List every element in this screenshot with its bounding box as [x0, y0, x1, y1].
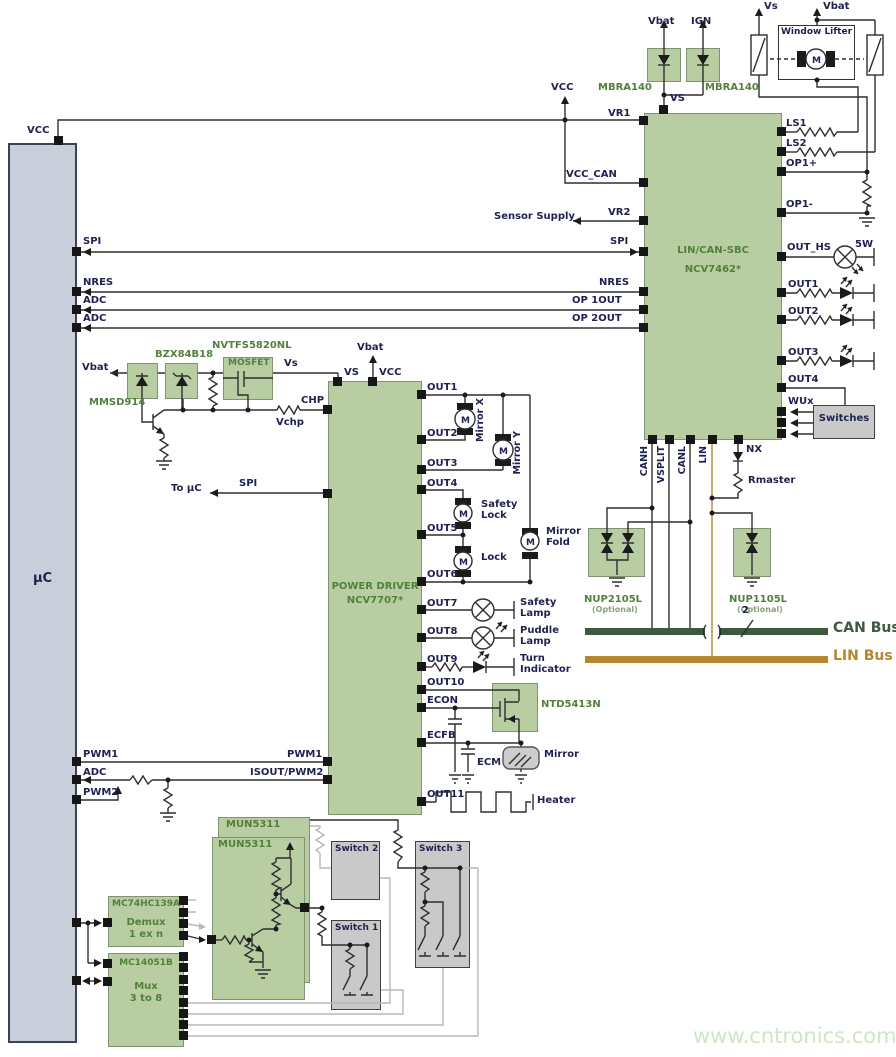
- lamp-safety-icon: [472, 599, 494, 621]
- drv-out11-label: OUT11: [427, 790, 464, 801]
- isout-pwm2-label: ISOUT/PWM2: [250, 768, 323, 779]
- vs-mid-label: Vs: [284, 359, 298, 370]
- motor-mirror-y-icon: M: [493, 434, 513, 466]
- sbc-bottom-bus: [585, 440, 828, 663]
- out4-label: OUT4: [788, 375, 818, 386]
- op1-minus-label: OP1-: [786, 200, 813, 211]
- op2out-label: OP 2OUT: [572, 314, 622, 325]
- vr1-label: VR1: [608, 109, 630, 120]
- drv-out7-label: OUT7: [427, 599, 457, 610]
- driver-title2: NCV7707*: [328, 596, 422, 607]
- switch1-label: Switch 1: [335, 924, 378, 933]
- out1-label: OUT1: [788, 280, 818, 291]
- switches-label: Switches: [813, 414, 875, 425]
- watt-label: 5W: [855, 240, 873, 251]
- mux-fn2-label: 3 to 8: [108, 994, 184, 1005]
- vr2-label: VR2: [608, 208, 630, 219]
- sbc-title2: NCV7462*: [644, 265, 782, 276]
- window-lifter-circuit: M: [751, 8, 883, 226]
- led-out2-icon: [840, 304, 853, 326]
- spi-driver-label: SPI: [239, 479, 257, 490]
- rmaster-label: Rmaster: [748, 476, 795, 487]
- op1out-label: OP 1OUT: [572, 296, 622, 307]
- mirror-label: Mirror: [544, 750, 579, 761]
- mux-part-label: MC14051B: [108, 959, 184, 968]
- canh-label: CANH: [640, 446, 650, 476]
- schottky-diode-icon: [658, 55, 670, 65]
- ntd5413n-label: NTD5413N: [541, 700, 601, 711]
- ls2-label: LS2: [786, 139, 807, 150]
- drv-out8-label: OUT8: [427, 627, 457, 638]
- ecm-label: ECM: [477, 758, 501, 769]
- puddle-lamp-label: Puddle Lamp: [520, 626, 564, 647]
- drv-out6-label: OUT6: [427, 570, 457, 581]
- pmos-switch-icon: [223, 371, 273, 410]
- diode-nx-icon: [733, 452, 743, 461]
- motor-mirror-fold-icon: M: [521, 528, 539, 559]
- adc3-label: ADC: [83, 768, 106, 779]
- can-bus-label: CAN Bus: [833, 621, 896, 636]
- mun-back-label: MUN5311: [226, 820, 280, 831]
- lin-label: LIN: [699, 446, 709, 464]
- lin-bus-label: LIN Bus: [833, 649, 893, 664]
- svg-text:M: M: [812, 56, 821, 66]
- safety-lock-label: Safety Lock: [481, 500, 525, 521]
- mirror-y-label: Mirror Y: [513, 431, 523, 474]
- heater-label: Heater: [537, 796, 575, 807]
- spi-mcu-label: SPI: [83, 237, 101, 248]
- drv-out4-label: OUT4: [427, 479, 457, 490]
- svg-text:M: M: [459, 510, 468, 520]
- chp-label: CHP: [301, 396, 324, 407]
- nvtfs-label: NVTFS5820NL: [212, 341, 292, 352]
- tvs-nup2105l-icon: [601, 528, 634, 586]
- vcc-mcu-label: VCC: [27, 126, 49, 137]
- demux-fn1-label: Demux: [108, 918, 184, 929]
- vcc-rails: [58, 96, 644, 225]
- canl-label: CANL: [678, 446, 688, 474]
- sbc-right-loads: [782, 246, 874, 438]
- vs-driver-label: VS: [344, 368, 359, 379]
- vcc-driver-label: VCC: [379, 368, 401, 379]
- ecfb-label: ECFB: [427, 731, 456, 742]
- vs-top-label: Vs: [764, 2, 778, 13]
- wux-label: WUx: [788, 397, 814, 408]
- nup2105l-note: (Optional): [592, 606, 638, 614]
- drv-out9-label: OUT9: [427, 655, 457, 666]
- drv-out3-label: OUT3: [427, 459, 457, 470]
- sensor-supply-label: Sensor Supply: [494, 212, 575, 223]
- drv-out5-label: OUT5: [427, 524, 457, 535]
- mbra140-right-label: MBRA140: [705, 83, 759, 94]
- vbat-row-label: Vbat: [82, 363, 108, 374]
- adc2-label: ADC: [83, 314, 106, 325]
- ls1-label: LS1: [786, 119, 807, 130]
- watermark: www.cntronics.com: [693, 1024, 896, 1048]
- schematic-canvas: M: [0, 0, 896, 1057]
- turn-indicator-label: Turn Indicator: [520, 654, 570, 675]
- demux-part-label: MC74HC139A: [108, 900, 184, 909]
- sbc-title1: LIN/CAN-SBC: [644, 246, 782, 257]
- switch3-label: Switch 3: [419, 845, 462, 854]
- switch2-label: Switch 2: [335, 845, 378, 854]
- driver-title1: POWER DRIVER: [328, 582, 422, 593]
- svg-text:M: M: [526, 538, 535, 548]
- pwm1-mcu-label: PWM1: [83, 750, 118, 761]
- zener-diode-icon: [173, 373, 191, 410]
- motor-mirror-x-icon: M: [455, 403, 475, 435]
- vbat-diode-label: Vbat: [648, 17, 674, 28]
- to-uc-label: To µC: [171, 484, 202, 495]
- adc1-label: ADC: [83, 296, 106, 307]
- mirror-fold-label: Mirror Fold: [546, 527, 586, 548]
- led-out3-icon: [840, 345, 853, 367]
- mmsd-label: MMSD914: [89, 398, 145, 409]
- window-lifter-motor-icon: M: [797, 49, 835, 69]
- mmsd914-diode-icon: [136, 373, 148, 399]
- safety-lamp-label: Safety Lamp: [520, 598, 564, 619]
- lamp-puddle-icon: [472, 622, 507, 649]
- schottky-diode-icon: [697, 55, 709, 65]
- pwm1-driver-label: PWM1: [287, 750, 322, 761]
- drv-out1-label: OUT1: [427, 383, 457, 394]
- vs-pin-label: VS: [670, 94, 685, 105]
- mirror-x-label: Mirror X: [476, 398, 486, 442]
- bzx-label: BZX84B18: [155, 350, 213, 361]
- mirror-glass-icon: [503, 743, 539, 783]
- op1-plus-label: OP1+: [786, 159, 817, 170]
- ntd5413n-mosfet-icon: [500, 698, 519, 743]
- spi-sbc-label: SPI: [610, 237, 628, 248]
- window-lifter-label: Window Lifter: [779, 28, 854, 37]
- nres-sbc-label: NRES: [599, 278, 629, 289]
- out3-label: OUT3: [788, 348, 818, 359]
- out-hs-label: OUT_HS: [787, 243, 831, 254]
- frontend-circuit: [110, 369, 338, 497]
- svg-text:M: M: [459, 558, 468, 568]
- vcc-top-label: VCC: [551, 83, 573, 94]
- nres-mcu-label: NRES: [83, 278, 113, 289]
- vsplit-label: VSPLIT: [657, 446, 667, 483]
- econ-label: ECON: [427, 696, 458, 707]
- tvs-nup1105l-icon: [744, 528, 760, 586]
- ign-label: IGN: [691, 17, 711, 28]
- mosfet-label: MOSFET: [228, 359, 270, 368]
- vbat-driver-label: Vbat: [357, 343, 383, 354]
- mun5311-circuit: [212, 842, 300, 978]
- mun-front-label: MUN5311: [218, 840, 272, 851]
- mux-fn1-label: Mux: [108, 982, 184, 993]
- svg-text:M: M: [461, 416, 470, 426]
- vchp-label: Vchp: [276, 418, 304, 429]
- mbra140-left-label: MBRA140: [598, 83, 652, 94]
- vbat-top-label: Vbat: [823, 2, 849, 13]
- mcu-sbc-signals: [81, 248, 639, 332]
- mcu-label: µC: [8, 572, 77, 586]
- led-out1-icon: [840, 277, 853, 299]
- svg-text:M: M: [499, 447, 508, 457]
- out2-label: OUT2: [788, 307, 818, 318]
- drv-out2-label: OUT2: [427, 429, 457, 440]
- led-turn-indicator-icon: [473, 651, 489, 673]
- demux-fn2-label: 1 ex n: [108, 930, 184, 941]
- nx-label: NX: [746, 445, 762, 456]
- driver-supplies: [369, 355, 377, 377]
- can-wires-label: 2: [742, 606, 749, 617]
- pwm2-label: PWM2: [83, 788, 118, 799]
- vcc-can-label: VCC_CAN: [566, 170, 617, 181]
- lock-label: Lock: [481, 553, 507, 564]
- nup2105l-label: NUP2105L: [584, 595, 642, 606]
- drv-out10-label: OUT10: [427, 678, 464, 689]
- nup1105l-label: NUP1105L: [729, 595, 787, 606]
